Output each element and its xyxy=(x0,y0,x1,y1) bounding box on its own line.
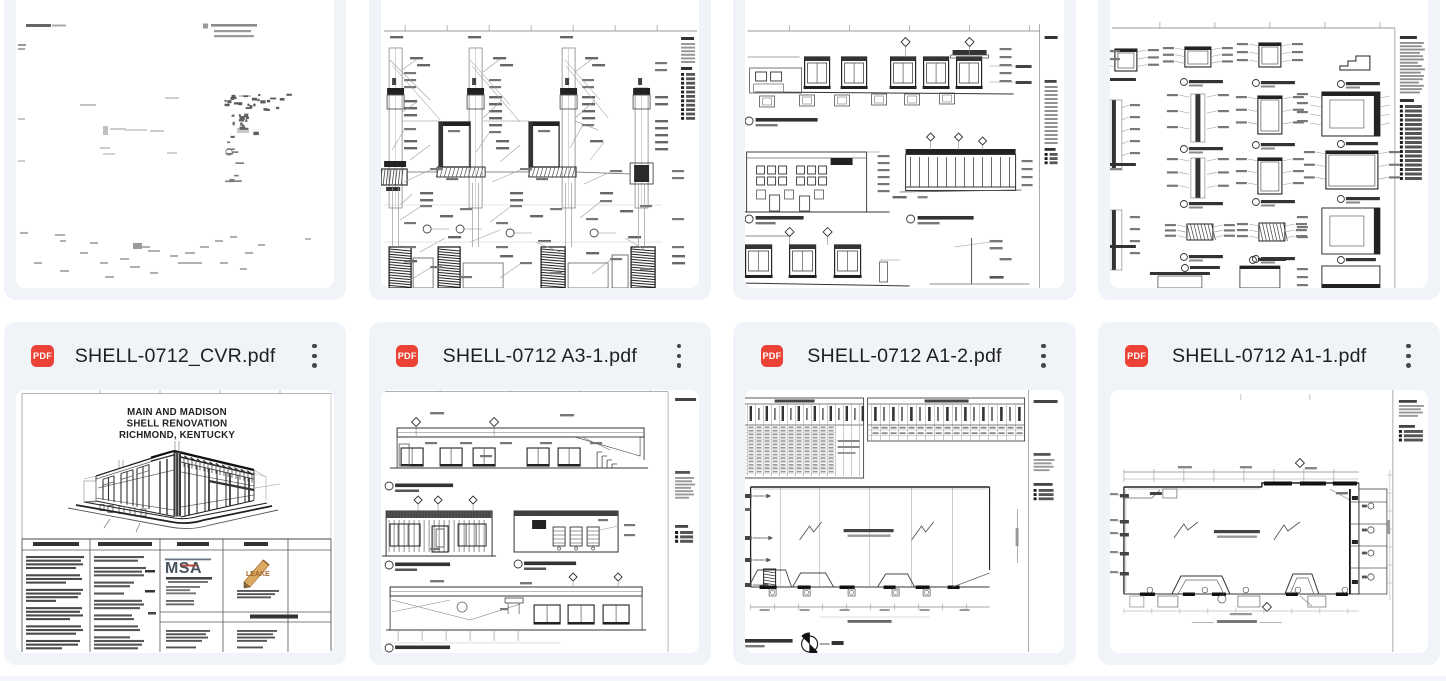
svg-text:LEAKE: LEAKE xyxy=(246,571,270,578)
svg-text:SHELL RENOVATION: SHELL RENOVATION xyxy=(127,419,228,430)
svg-text:RICHMOND, KENTUCKY: RICHMOND, KENTUCKY xyxy=(119,430,235,441)
svg-text:MSA: MSA xyxy=(165,560,202,577)
svg-text:MAIN AND MADISON: MAIN AND MADISON xyxy=(127,407,227,418)
